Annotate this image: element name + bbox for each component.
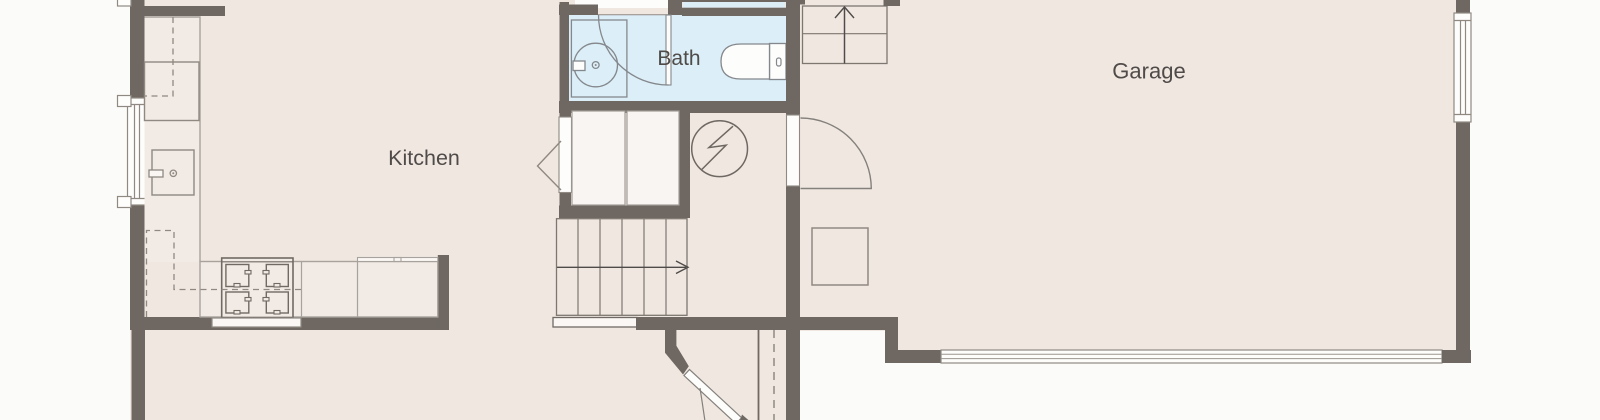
svg-text:Bath: Bath [657,47,700,70]
svg-text:Garage: Garage [1112,59,1185,84]
svg-text:Kitchen: Kitchen [388,146,460,170]
